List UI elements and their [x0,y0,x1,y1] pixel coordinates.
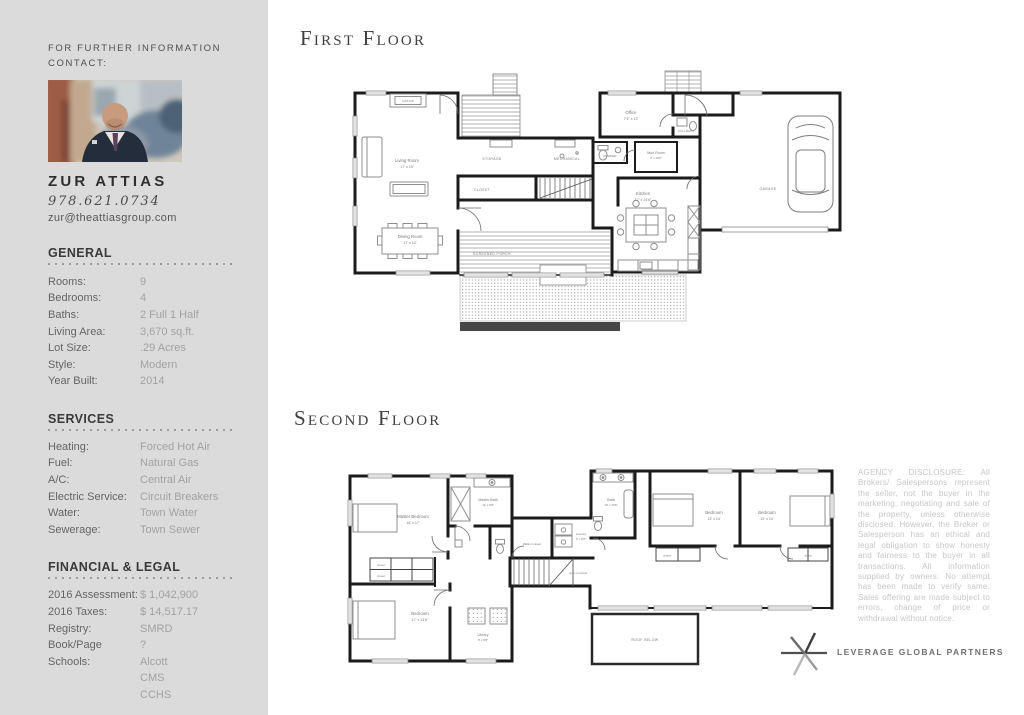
room-label-living: Living Room [395,158,419,163]
info-row: A/C:Central Air [48,472,250,489]
leverage-star-icon [780,628,828,676]
row-value: CMS [140,672,164,684]
row-label: Bedrooms: [48,292,140,304]
row-value: Modern [140,359,177,371]
patio-edge [460,322,620,331]
room-dims-dining: 17' x 12' [403,241,416,245]
label-closet: closet [377,563,385,567]
row-value: 4 [140,292,146,304]
row-label: Style: [48,359,140,371]
room-label-mechanical: MECHANICAL [554,157,580,161]
info-row: Year Built:2014 [48,373,250,390]
info-row: Heating:Forced Hot Air [48,439,250,456]
room-dims-master-bedroom: 16' x 17' [406,521,419,525]
room-label-full-bath: FULL BATH [678,129,693,133]
row-value: 2 Full 1 Half [140,309,199,321]
section-general-title: GENERAL [48,246,250,260]
room-label-bedroom4: Bedroom [758,510,776,515]
info-row: CCHS [48,687,250,704]
agent-phone: 978.621.0734 [48,194,250,209]
row-value: 2014 [140,375,164,387]
info-row: Living Area:3,670 sq.ft. [48,323,250,340]
info-row: Fuel:Natural Gas [48,455,250,472]
room-label-bath: Bath [607,498,614,502]
sidebar: FOR FURTHER INFORMATION CONTACT: [0,0,268,715]
info-row: Registry:SMRD [48,620,250,637]
row-label: Rooms: [48,276,140,288]
info-row: Sewerage:Town Sewer [48,522,250,539]
room-dims-bedroom4: 12' x 14' [760,517,773,521]
section-services: SERVICES Heating:Forced Hot Air Fuel:Nat… [48,412,250,539]
second-floor-plan: Master Bedroom 16' x 17' Master Bath 14'… [340,456,845,672]
room-dims-bedroom3: 13' x 14' [707,517,720,521]
row-value: Forced Hot Air [140,441,210,453]
row-label: 2016 Assessment: [48,589,140,601]
row-label: Sewerage: [48,524,140,536]
dotted-divider [48,577,236,579]
room-dims-bath: 10' x 10'6" [604,503,617,507]
room-label-walk-in-closet: Walk-in closet [523,542,541,546]
room-dims-laundry: 6' x 6'6" [576,537,586,541]
label-open-to-below: open to below [569,571,588,575]
row-value: CCHS [140,689,171,701]
room-label-storage: STORAGE [482,157,502,161]
contact-heading: FOR FURTHER INFORMATION CONTACT: [48,42,250,71]
room-label-library: Library [478,633,489,637]
info-row: Water:Town Water [48,505,250,522]
room-label-bedroom2: Bedroom [411,611,429,616]
row-value: Natural Gas [140,457,199,469]
room-label-bedroom3: Bedroom [705,510,723,515]
row-label: Book/Page [48,639,140,651]
room-dims-library: 8' x 9'8" [478,638,488,642]
main-content: First Floor [268,0,1024,715]
info-row: 2016 Assessment:$ 1,042,900 [48,587,250,604]
room-dims-kitchen: 17' x 14'6" [635,198,652,202]
row-label: 2016 Taxes: [48,606,140,618]
agent-photo [48,80,182,162]
section-services-title: SERVICES [48,412,250,426]
row-label: Schools: [48,656,140,668]
info-row: Bedrooms:4 [48,290,250,307]
row-label: Registry: [48,623,140,635]
room-label-kitchen: Kitchen [636,191,651,196]
room-dims-living: 17' x 19' [400,165,413,169]
label-closet: closet [663,554,671,558]
label-closet: closet [804,554,812,558]
row-value: Town Sewer [140,524,200,536]
dotted-divider [48,429,236,431]
section-general: GENERAL Rooms:9 Bedrooms:4 Baths:2 Full … [48,246,250,389]
first-floor-title: First Floor [300,26,426,51]
row-label: Lot Size: [48,342,140,354]
agent-name: ZUR ATTIAS [48,173,250,190]
brand-logo: LEVERAGE GLOBAL PARTNERS [780,628,1004,676]
second-floor-title: Second Floor [294,406,442,431]
room-dims-master-bath: 14' x 9'8" [482,503,494,507]
row-value: 9 [140,276,146,288]
room-label-closet: CLOSET [474,188,490,192]
info-row: CMS [48,670,250,687]
row-label: Electric Service: [48,491,140,503]
closet-blocks [370,548,828,581]
brand-logo-text: LEVERAGE GLOBAL PARTNERS [837,647,1004,657]
section-financial-legal-title: FINANCIAL & LEGAL [48,560,250,574]
row-label: Water: [48,507,140,519]
car-in-garage [788,116,833,212]
info-row: Book/Page? [48,637,250,654]
flyer-page: FOR FURTHER INFORMATION CONTACT: [0,0,1024,715]
room-label-dining: Dining Room [398,234,423,239]
agency-disclosure: AGENCY DISCLOSURE: All Brokers/ Salesper… [858,468,990,624]
first-floor-stairs [540,178,592,198]
first-floor-plan: Living Room 17' x 19' Dining Room 17' x … [340,58,850,350]
info-row: Lot Size:.29 Acres [48,340,250,357]
section-financial-legal: FINANCIAL & LEGAL 2016 Assessment:$ 1,04… [48,560,250,703]
agent-email: zur@theattiasgroup.com [48,212,250,224]
row-value: SMRD [140,623,172,635]
info-row: Schools:Alcott [48,654,250,671]
row-value: .29 Acres [140,342,186,354]
room-label-screened-porch: SCREENED PORCH [473,252,511,256]
room-label-master-bath: Master Bath [478,498,497,502]
room-label-powder: POWDER [603,154,616,158]
row-value: $ 1,042,900 [140,589,198,601]
row-label: A/C: [48,474,140,486]
info-row: 2016 Taxes:$ 14,517.17 [48,604,250,621]
row-value: Circuit Breakers [140,491,218,503]
second-floor-labels: Master Bedroom 16' x 17' Master Bath 14'… [377,498,812,642]
row-value: ? [140,639,146,651]
room-dims-office: 7'4" x 13' [624,117,639,121]
row-label: Heating: [48,441,140,453]
label-gas-fireplace: GAS F/P [402,99,413,103]
row-value: $ 14,517.17 [140,606,198,618]
row-label: Baths: [48,309,140,321]
row-label: Living Area: [48,326,140,338]
row-value: Town Water [140,507,198,519]
info-row: Baths:2 Full 1 Half [48,307,250,324]
room-label-office: Office [625,110,637,115]
row-value: 3,670 sq.ft. [140,326,194,338]
label-roof-below: ROOF BELOW [632,638,659,642]
room-dims-bedroom2: 17' x 13'6" [412,618,429,622]
info-row: Rooms:9 [48,273,250,290]
room-dims-mud: 8' x 10'6" [650,156,662,160]
row-label: Fuel: [48,457,140,469]
label-closet: closet [377,574,385,578]
second-floor-stairs [514,558,573,586]
room-label-mud: Mud Room [647,151,665,155]
room-label-laundry: Laundry [576,532,587,536]
garage-door [722,227,828,232]
agent-photo-illustration [48,80,182,162]
row-value: Central Air [140,474,191,486]
row-label: Year Built: [48,375,140,387]
room-label-garage: GARAGE [760,187,777,191]
info-row: Style:Modern [48,356,250,373]
info-row: Electric Service:Circuit Breakers [48,488,250,505]
room-label-master-bedroom: Master Bedroom [397,514,429,519]
row-value: Alcott [140,656,168,668]
dotted-divider [48,263,236,265]
